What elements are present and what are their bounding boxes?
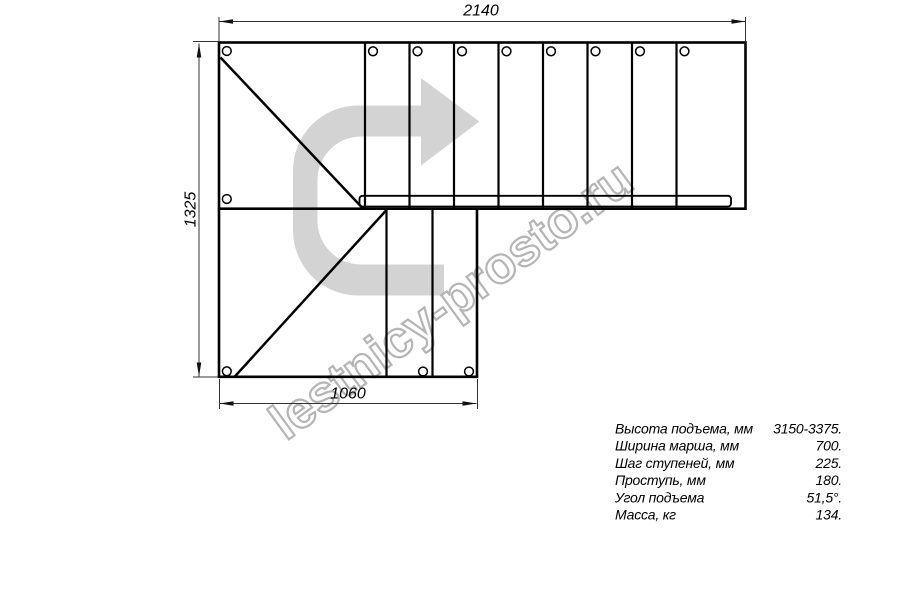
svg-text:3150-3375.: 3150-3375. — [773, 421, 842, 437]
svg-text:134.: 134. — [816, 507, 842, 523]
svg-text:180.: 180. — [816, 472, 842, 488]
svg-text:700.: 700. — [816, 438, 842, 454]
svg-text:225.: 225. — [815, 455, 842, 471]
svg-text:1060: 1060 — [330, 386, 366, 403]
svg-text:Высота подъема, мм: Высота подъема, мм — [615, 421, 754, 437]
svg-text:2140: 2140 — [462, 3, 499, 20]
svg-text:1325: 1325 — [183, 192, 200, 228]
svg-text:Шаг ступеней, мм: Шаг ступеней, мм — [615, 455, 735, 471]
svg-text:Ширина марша, мм: Ширина марша, мм — [615, 438, 740, 454]
svg-text:Масса, кг: Масса, кг — [615, 507, 676, 523]
svg-text:Проступь, мм: Проступь, мм — [615, 472, 706, 488]
svg-text:Угол подъема: Угол подъема — [614, 489, 705, 505]
svg-text:51,5°.: 51,5°. — [806, 489, 842, 505]
